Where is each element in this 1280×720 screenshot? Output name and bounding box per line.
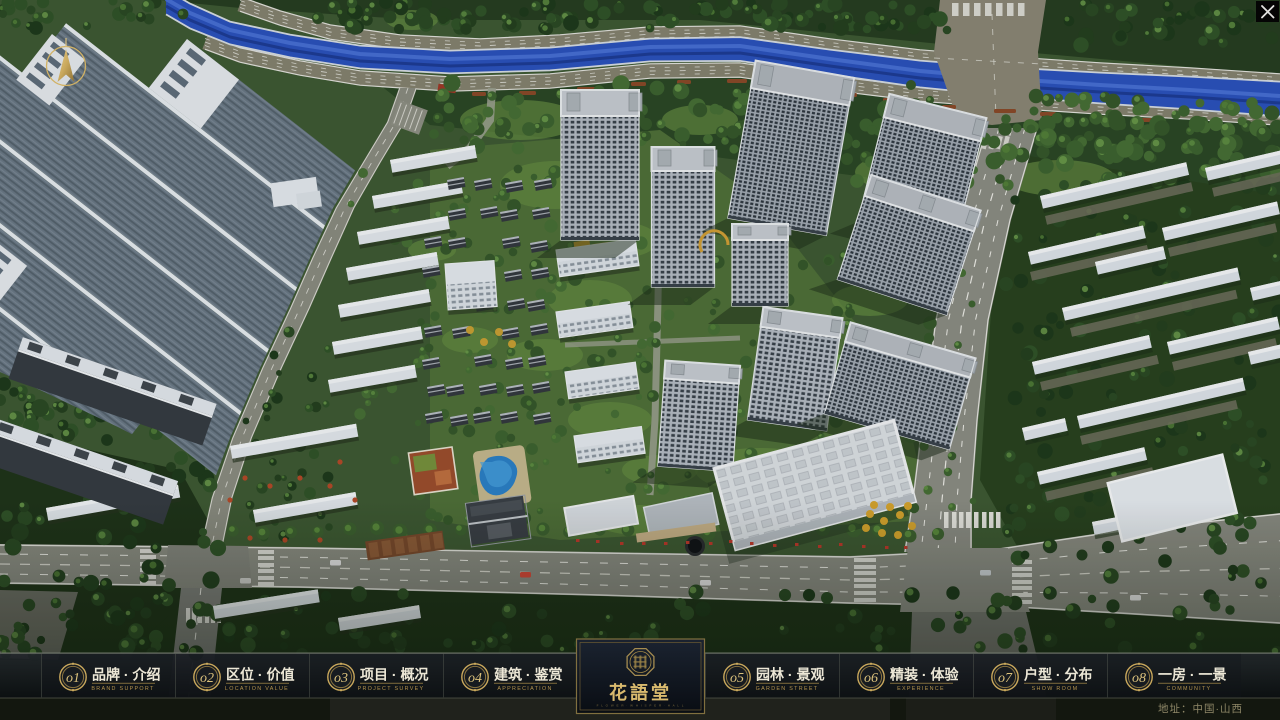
svg-text:PROJECT SURVEY: PROJECT SURVEY (358, 686, 425, 692)
svg-text:o5: o5 (730, 671, 744, 686)
svg-text:区位 · 价值: 区位 · 价值 (226, 667, 294, 683)
svg-text:户型 · 分布: 户型 · 分布 (1024, 667, 1092, 683)
svg-text:项目 · 概况: 项目 · 概况 (360, 667, 428, 683)
svg-text:o8: o8 (1132, 671, 1146, 686)
svg-text:APPRECIATION: APPRECIATION (497, 686, 552, 692)
svg-text:o6: o6 (864, 671, 878, 686)
svg-text:品牌 · 介绍: 品牌 · 介绍 (92, 667, 160, 683)
svg-text:o7: o7 (998, 671, 1013, 686)
svg-text:花語堂: 花語堂 (609, 682, 672, 703)
svg-text:SHOW ROOM: SHOW ROOM (1032, 686, 1079, 692)
svg-text:o1: o1 (66, 671, 80, 686)
svg-text:地址：中国·山西: 地址：中国·山西 (1158, 702, 1243, 715)
svg-text:o2: o2 (200, 671, 214, 686)
svg-text:建筑 · 鉴赏: 建筑 · 鉴赏 (494, 667, 562, 683)
svg-text:园林 · 景观: 园林 · 景观 (756, 667, 824, 683)
svg-text:o4: o4 (468, 671, 482, 686)
svg-text:F L O W E R · W H I S P E R ·: F L O W E R · W H I S P E R · H A L L (597, 704, 685, 708)
svg-text:o3: o3 (334, 671, 348, 686)
svg-text:LOCATION VALUE: LOCATION VALUE (225, 686, 289, 692)
svg-text:一房 · 一景: 一房 · 一景 (1158, 667, 1226, 683)
svg-text:GARDEN STREET: GARDEN STREET (756, 686, 819, 692)
svg-text:EXPERIENCE: EXPERIENCE (897, 686, 945, 692)
svg-text:BRAND SUPPORT: BRAND SUPPORT (91, 686, 154, 692)
svg-text:COMMUNITY: COMMUNITY (1167, 686, 1212, 692)
svg-text:精装 · 体验: 精装 · 体验 (890, 667, 959, 683)
